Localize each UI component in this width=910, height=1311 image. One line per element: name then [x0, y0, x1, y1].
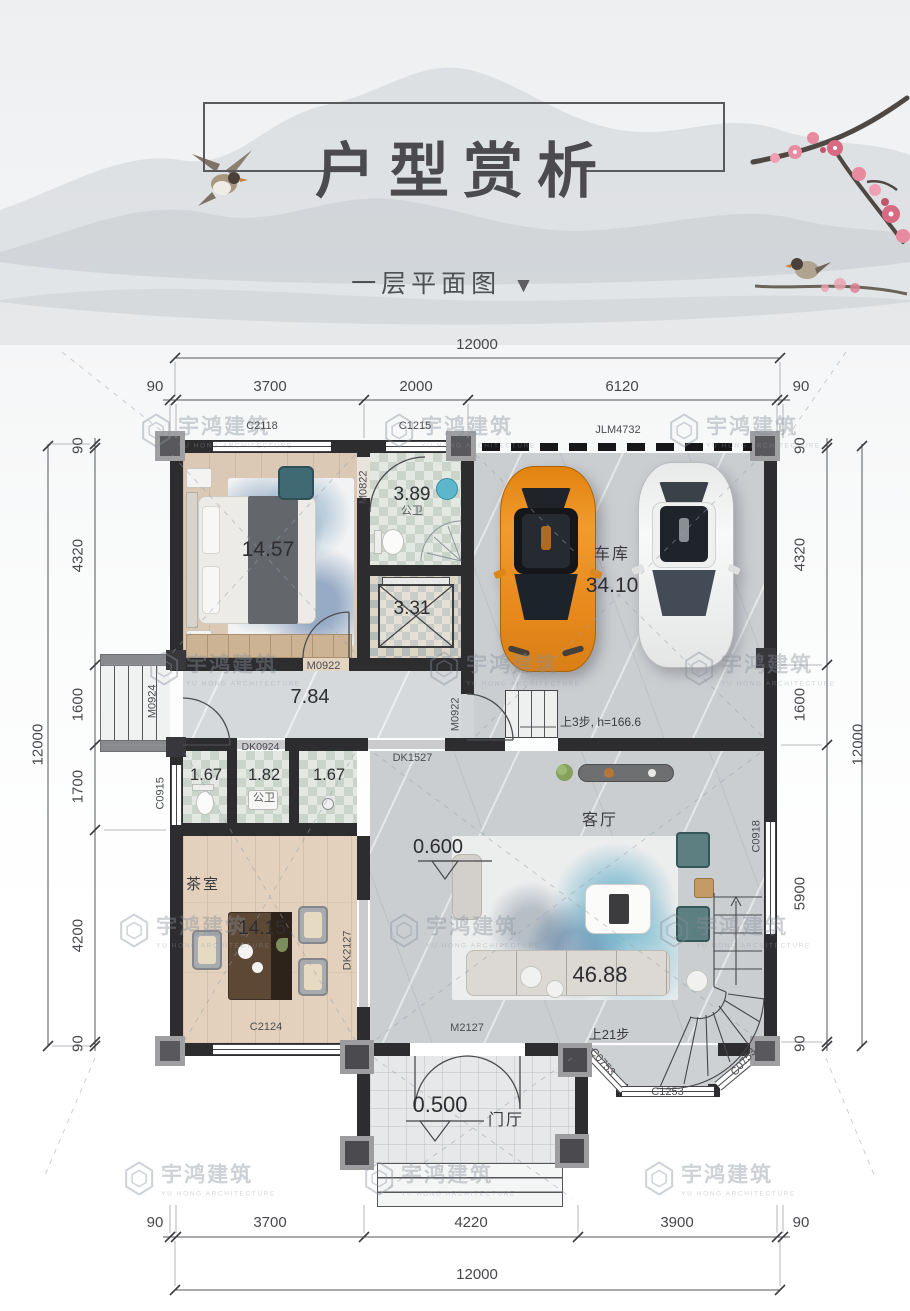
opening-label-m0822: M0822 [358, 457, 371, 517]
wall [227, 751, 237, 823]
tea-chair [192, 930, 222, 970]
room-area-tea-room: 14.15 [222, 918, 302, 940]
wall [357, 440, 370, 457]
bird-on-branch-decoration [755, 238, 910, 308]
wall [170, 658, 303, 671]
opening-label-m0922-garage: M0922 [450, 684, 463, 744]
room-label-wc-mid: 公卫 [238, 792, 290, 805]
dk2127-threshold [359, 900, 368, 1007]
entrance-steps [377, 1163, 563, 1207]
wall [289, 751, 299, 823]
wall [357, 498, 370, 665]
opening-label-c2118: C2118 [232, 420, 292, 433]
watermark-text-cn: 宇鸿建筑 [161, 1159, 276, 1189]
watermark: 宇鸿建筑YU HONG ARCHITECTURE [644, 1159, 796, 1198]
window-c2118 [213, 441, 331, 452]
room-label-bathroom: 公卫 [380, 505, 444, 518]
flying-bird-decoration [186, 136, 262, 222]
column [166, 737, 186, 757]
dim-bottom-3900: 3900 [627, 1214, 727, 1231]
wc-right-floor [299, 751, 357, 823]
column [446, 431, 476, 461]
leaf-decor [276, 938, 288, 952]
wall [285, 738, 368, 751]
car-interior [541, 526, 551, 550]
title-box-border-left [203, 102, 205, 172]
room-label-garage: 车库 [572, 546, 652, 564]
dim-right-5900: 5900 [791, 852, 808, 936]
opening-label-m2127: M2127 [437, 1022, 497, 1035]
wall [357, 1007, 370, 1043]
dim-bottom-3700: 3700 [220, 1214, 320, 1231]
room-label-foyer: 门厅 [482, 1112, 530, 1130]
column [166, 650, 186, 670]
wall [170, 823, 357, 836]
dim-top-90-right: 90 [786, 378, 816, 395]
dim-left-90-bottom: 90 [69, 1002, 86, 1086]
tea-cup [252, 962, 263, 973]
dim-right-90-bottom: 90 [791, 1002, 808, 1086]
wall [558, 738, 764, 751]
dim-right-4320: 4320 [791, 513, 808, 597]
dk1527-threshold [368, 740, 445, 749]
dim-left-overall: 12000 [29, 703, 46, 787]
window-c0918 [765, 822, 776, 934]
porch-column [555, 1134, 589, 1168]
bed-pillow [202, 566, 220, 614]
room-label-living: 客厅 [568, 812, 632, 830]
plant [556, 764, 573, 781]
column [756, 648, 776, 668]
coffee-table-tray [609, 894, 629, 924]
toilet-tank [374, 530, 382, 554]
note-stair-small: 上3步, h=166.6 [560, 716, 690, 730]
column [155, 431, 185, 461]
armchair [676, 832, 710, 868]
tea-chair [298, 958, 328, 996]
note-stair-main: 上21步 [574, 1028, 644, 1043]
pouf [520, 966, 542, 988]
shower-drain [322, 798, 334, 810]
dim-right-90-top: 90 [791, 404, 808, 488]
car-interior [679, 518, 689, 542]
tea-cup [238, 944, 253, 959]
watermark-text-cn: 宇鸿建筑 [681, 1159, 796, 1189]
room-area-wc-mid: 1.82 [239, 766, 289, 785]
dim-bottom-overall: 12000 [397, 1266, 557, 1283]
armchair [676, 906, 710, 942]
opening-label-jlm4732: JLM4732 [578, 424, 658, 437]
window-c2124 [213, 1044, 345, 1055]
pouf [686, 970, 708, 992]
wall [370, 1043, 410, 1056]
page-title: 户型赏析 [263, 138, 663, 207]
floor-plan-poster: 户型赏析 一层平面图 ▼ [0, 0, 910, 1311]
wc-toilet-tank [192, 784, 214, 791]
toilet [382, 529, 404, 555]
room-area-hallway: 7.84 [270, 686, 350, 709]
nightstand [186, 468, 212, 488]
column [155, 1036, 185, 1066]
level-living: 0.600 [404, 836, 472, 859]
room-area-wc-left: 1.67 [181, 766, 231, 785]
down-triangle-icon: ▼ [513, 274, 539, 297]
bed-headboard [186, 492, 198, 628]
dim-left-1600: 1600 [69, 663, 86, 747]
room-area-living: 46.88 [556, 962, 644, 987]
opening-label-c1253: C1253 [640, 1086, 695, 1099]
wc-mid-floor [237, 751, 289, 823]
room-area-shaft: 3.31 [372, 598, 452, 620]
room-area-bedroom: 14.57 [218, 538, 318, 562]
dim-bottom-4220: 4220 [421, 1214, 521, 1231]
dim-bottom-90-right: 90 [786, 1214, 816, 1231]
dim-left-1700: 1700 [69, 745, 86, 829]
plum-blossom-decoration [735, 90, 910, 305]
console-decor [604, 768, 614, 778]
opening-label-c0918: C0918 [751, 806, 764, 866]
opening-label-m0924: M0924 [147, 671, 160, 731]
watermark: 宇鸿建筑YU HONG ARCHITECTURE [124, 1159, 276, 1198]
room-area-garage: 34.10 [570, 574, 654, 598]
side-stair-wall-top [100, 654, 170, 666]
wall [357, 565, 474, 576]
side-table [694, 878, 714, 898]
wall [357, 836, 370, 900]
room-area-bathroom: 3.89 [372, 484, 452, 506]
tea-chair [298, 906, 328, 944]
opening-label-dk0924: DK0924 [233, 741, 288, 753]
side-stair-wall-bottom [100, 740, 170, 752]
garage-landing-steps [505, 690, 558, 738]
dim-top-overall: 12000 [397, 336, 557, 353]
title-box-border-right [723, 102, 725, 172]
column [750, 431, 780, 461]
porch-column [340, 1136, 374, 1170]
garage-door-threshold [461, 694, 474, 740]
opening-label-c1215: C1215 [385, 420, 445, 433]
wall [764, 440, 777, 1056]
bedroom-cabinet [186, 634, 352, 658]
page-subtitle: 一层平面图 ▼ [305, 270, 585, 299]
dim-left-4320: 4320 [69, 514, 86, 598]
side-stair-steps [100, 666, 170, 740]
console-table [578, 764, 674, 782]
watermark-text-en: YU HONG ARCHITECTURE [161, 1191, 276, 1198]
dim-right-overall: 12000 [849, 703, 866, 787]
wall [349, 658, 474, 671]
dim-left-4200: 4200 [69, 894, 86, 978]
dim-bottom-90-left: 90 [140, 1214, 170, 1231]
room-area-wc-right: 1.67 [304, 766, 354, 785]
dim-top-2000: 2000 [366, 378, 466, 395]
dim-top-90-left: 90 [140, 378, 170, 395]
opening-label-c0915: C0915 [155, 763, 168, 823]
subtitle-text: 一层平面图 [351, 270, 501, 298]
wc-toilet [196, 791, 214, 815]
watermark-text-en: YU HONG ARCHITECTURE [681, 1191, 796, 1198]
dim-top-6120: 6120 [572, 378, 672, 395]
bedroom-lounge-chair [278, 466, 314, 500]
opening-label-c2124: C2124 [236, 1021, 296, 1034]
chaise [452, 854, 482, 920]
console-decor [648, 769, 656, 777]
title-box-border-top [203, 102, 725, 104]
car-white [636, 458, 736, 672]
dim-right-1600: 1600 [791, 663, 808, 747]
car-orange [498, 462, 598, 676]
porch-column [340, 1040, 374, 1074]
opening-label-dk2127: DK2127 [342, 920, 355, 980]
wall [170, 440, 183, 665]
dim-left-90-top: 90 [69, 404, 86, 488]
shaft-ledge [382, 577, 450, 585]
opening-label-m0922-bedroom: M0922 [296, 660, 351, 673]
dim-top-3700: 3700 [220, 378, 320, 395]
opening-label-dk1527: DK1527 [380, 752, 445, 765]
room-label-tea-room: 茶室 [176, 876, 230, 893]
level-foyer: 0.500 [402, 1092, 478, 1117]
